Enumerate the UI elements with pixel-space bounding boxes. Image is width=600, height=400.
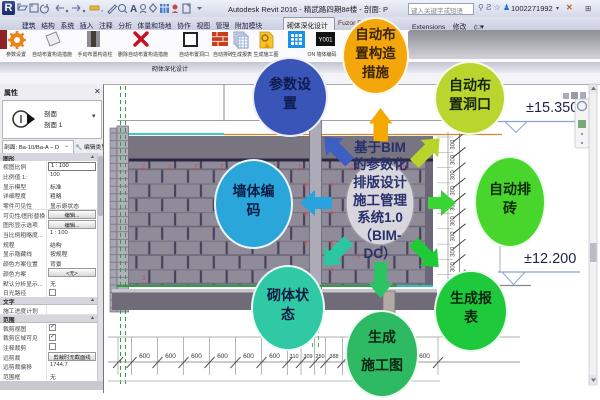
svg-text:A: A (130, 4, 137, 15)
svg-text:Y001: Y001 (318, 38, 333, 44)
